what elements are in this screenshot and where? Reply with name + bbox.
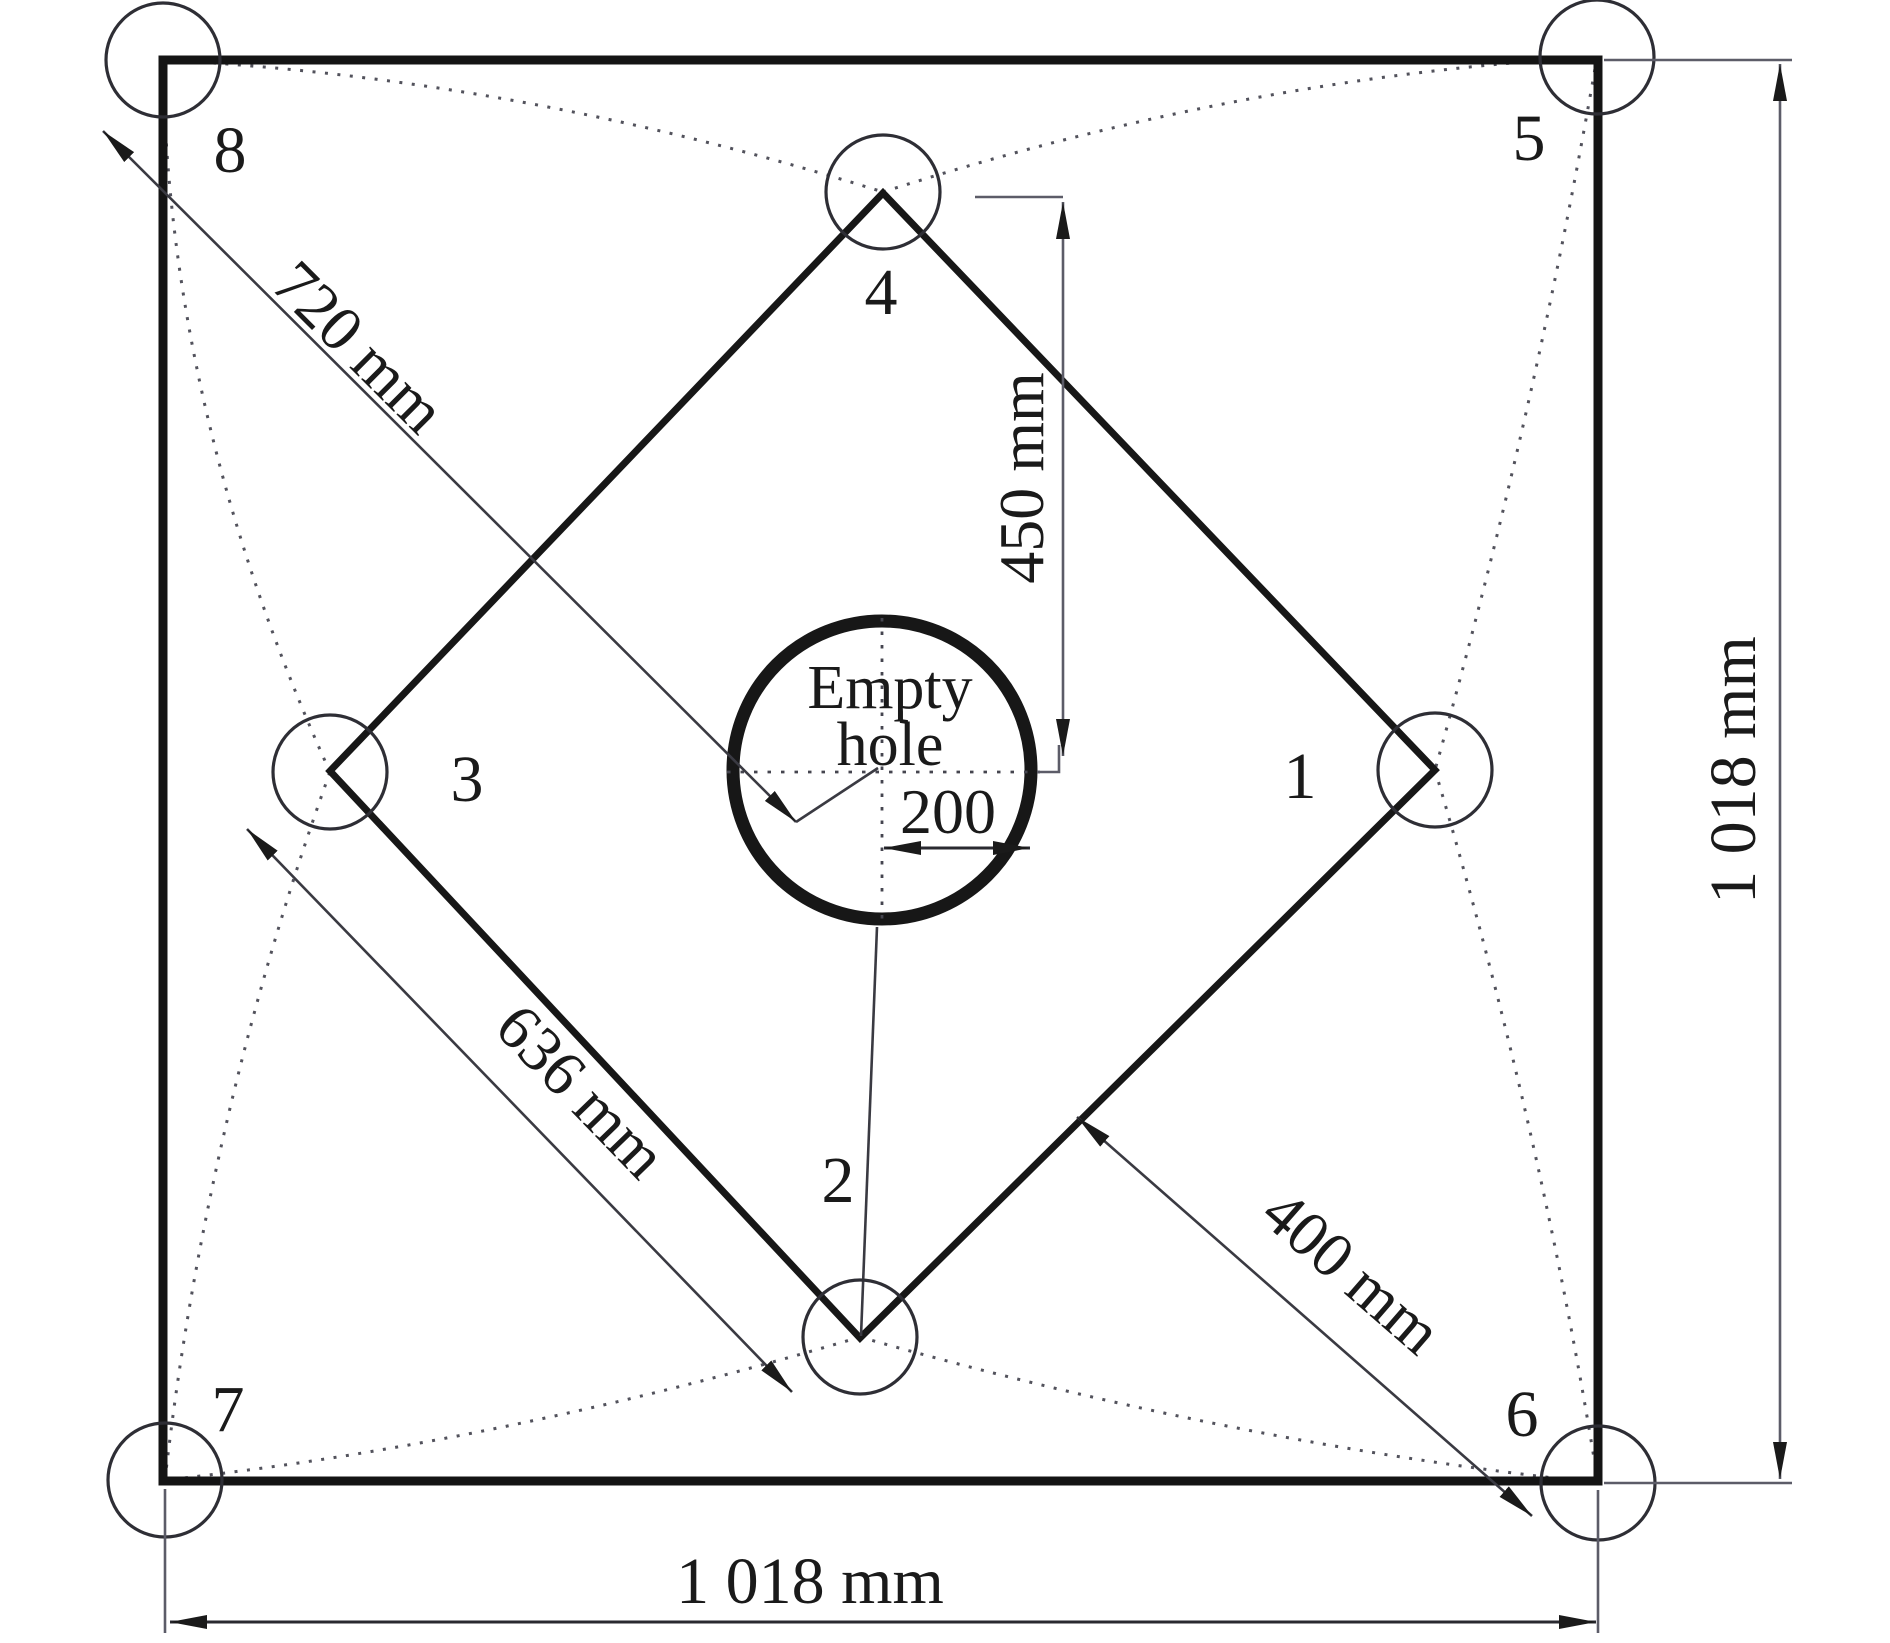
empty-hole-caption-line2: hole [837, 711, 944, 779]
dotted-trace-8-4 [163, 60, 883, 192]
dimension-636: 636 mm [247, 829, 792, 1392]
blast-hole-pattern-figure: 720 mm 450 mm 636 mm 400 mm 200 1 018 mm… [0, 0, 1890, 1643]
hole-4-label: 4 [865, 256, 898, 329]
centerline-to-hole-2 [861, 927, 877, 1336]
hole-3-label: 3 [451, 743, 484, 816]
dim-width-label: 1 018 mm [676, 1545, 944, 1618]
dotted-trace-4-5 [883, 57, 1597, 192]
hole-2-label: 2 [822, 1144, 855, 1217]
dim-636-line [247, 829, 792, 1392]
empty-hole-caption: Empty hole [807, 654, 972, 779]
dimension-450: 450 mm [975, 197, 1063, 772]
dimension-width-1018: 1 018 mm [165, 1489, 1598, 1633]
dimension-720: 720 mm [103, 131, 878, 822]
hole-5-label: 5 [1513, 102, 1546, 175]
dimension-400: 400 mm [1077, 1117, 1532, 1516]
dim-height-label: 1 018 mm [1697, 636, 1770, 904]
dotted-trace-3-8 [163, 60, 330, 772]
hole-6-label: 6 [1506, 1378, 1539, 1451]
dim-400-label: 400 mm [1249, 1176, 1455, 1368]
dimension-height-1018: 1 018 mm [1604, 60, 1792, 1483]
dotted-trace-7-3 [165, 772, 330, 1480]
dim-200-label: 200 [900, 776, 996, 847]
dotted-trace-6-2 [860, 1337, 1598, 1483]
dim-400-line [1077, 1117, 1532, 1516]
dim-636-label: 636 mm [482, 990, 680, 1192]
diagram-canvas: 720 mm 450 mm 636 mm 400 mm 200 1 018 mm… [0, 0, 1890, 1643]
hole-7-label: 7 [212, 1373, 245, 1446]
dotted-trace-2-7 [165, 1337, 860, 1480]
dim-720-line [103, 131, 796, 822]
dim-720-label: 720 mm [259, 247, 459, 447]
dim-450-label: 450 mm [986, 372, 1057, 584]
dim-450-bottom-jog [1037, 745, 1059, 772]
dotted-trace-1-6 [1435, 770, 1598, 1483]
hole-1-label: 1 [1284, 740, 1317, 813]
hole-8-label: 8 [214, 114, 247, 187]
